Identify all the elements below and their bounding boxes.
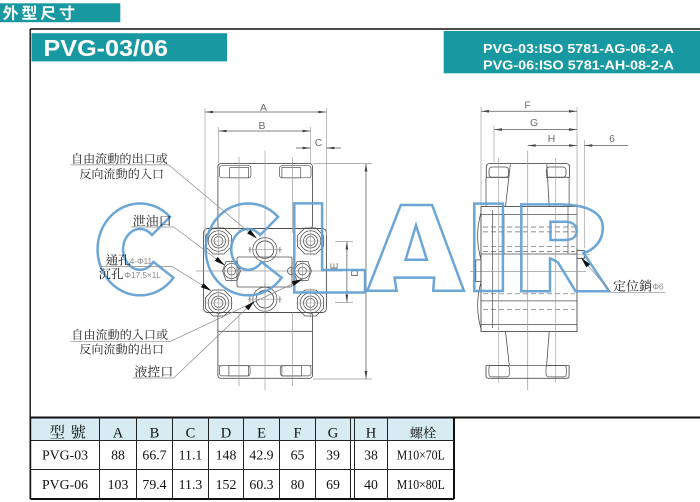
svg-text:103: 103 (108, 477, 129, 492)
svg-text:PVG-03/06: PVG-03/06 (44, 35, 169, 61)
svg-text:66.7: 66.7 (142, 448, 166, 463)
svg-text:11.1: 11.1 (179, 448, 203, 463)
svg-text:G: G (328, 425, 339, 441)
svg-text:79.4: 79.4 (142, 477, 166, 492)
svg-text:152: 152 (216, 477, 237, 492)
svg-text:E: E (257, 425, 266, 441)
svg-text:Φ17.5×1L: Φ17.5×1L (125, 271, 162, 280)
svg-text:M10×70L: M10×70L (397, 448, 445, 463)
svg-text:PVG-06:ISO 5781-AH-08-2-A: PVG-06:ISO 5781-AH-08-2-A (483, 58, 675, 73)
svg-text:B: B (259, 121, 266, 132)
svg-text:E: E (330, 262, 341, 269)
svg-text:F: F (293, 425, 301, 441)
svg-text:60.3: 60.3 (249, 477, 273, 492)
svg-text:B: B (150, 425, 160, 441)
svg-text:38: 38 (364, 448, 378, 463)
svg-text:D: D (221, 425, 231, 441)
svg-text:69: 69 (326, 477, 340, 492)
svg-text:42.9: 42.9 (249, 448, 273, 463)
svg-text:A: A (260, 103, 267, 114)
svg-text:148: 148 (216, 448, 237, 463)
svg-text:40: 40 (364, 477, 378, 492)
svg-text:H: H (548, 134, 556, 145)
svg-text:H: H (366, 425, 377, 441)
svg-text:80: 80 (291, 477, 305, 492)
svg-text:PVG-06: PVG-06 (42, 477, 88, 492)
svg-text:PVG-03: PVG-03 (42, 448, 88, 463)
svg-text:C: C (186, 425, 196, 441)
svg-text:6: 6 (609, 134, 615, 145)
svg-text:Φ6: Φ6 (653, 282, 665, 291)
svg-text:F: F (524, 100, 530, 111)
svg-text:65: 65 (291, 448, 305, 463)
svg-text:4-Φ11: 4-Φ11 (130, 257, 153, 266)
svg-text:G: G (530, 118, 538, 129)
svg-text:M10×80L: M10×80L (397, 477, 445, 492)
svg-text:11.3: 11.3 (179, 477, 203, 492)
svg-text:A: A (113, 425, 124, 441)
svg-text:39: 39 (326, 448, 340, 463)
svg-text:88: 88 (111, 448, 125, 463)
svg-text:C: C (315, 138, 323, 149)
svg-text:PVG-03:ISO 5781-AG-06-2-A: PVG-03:ISO 5781-AG-06-2-A (483, 41, 675, 56)
